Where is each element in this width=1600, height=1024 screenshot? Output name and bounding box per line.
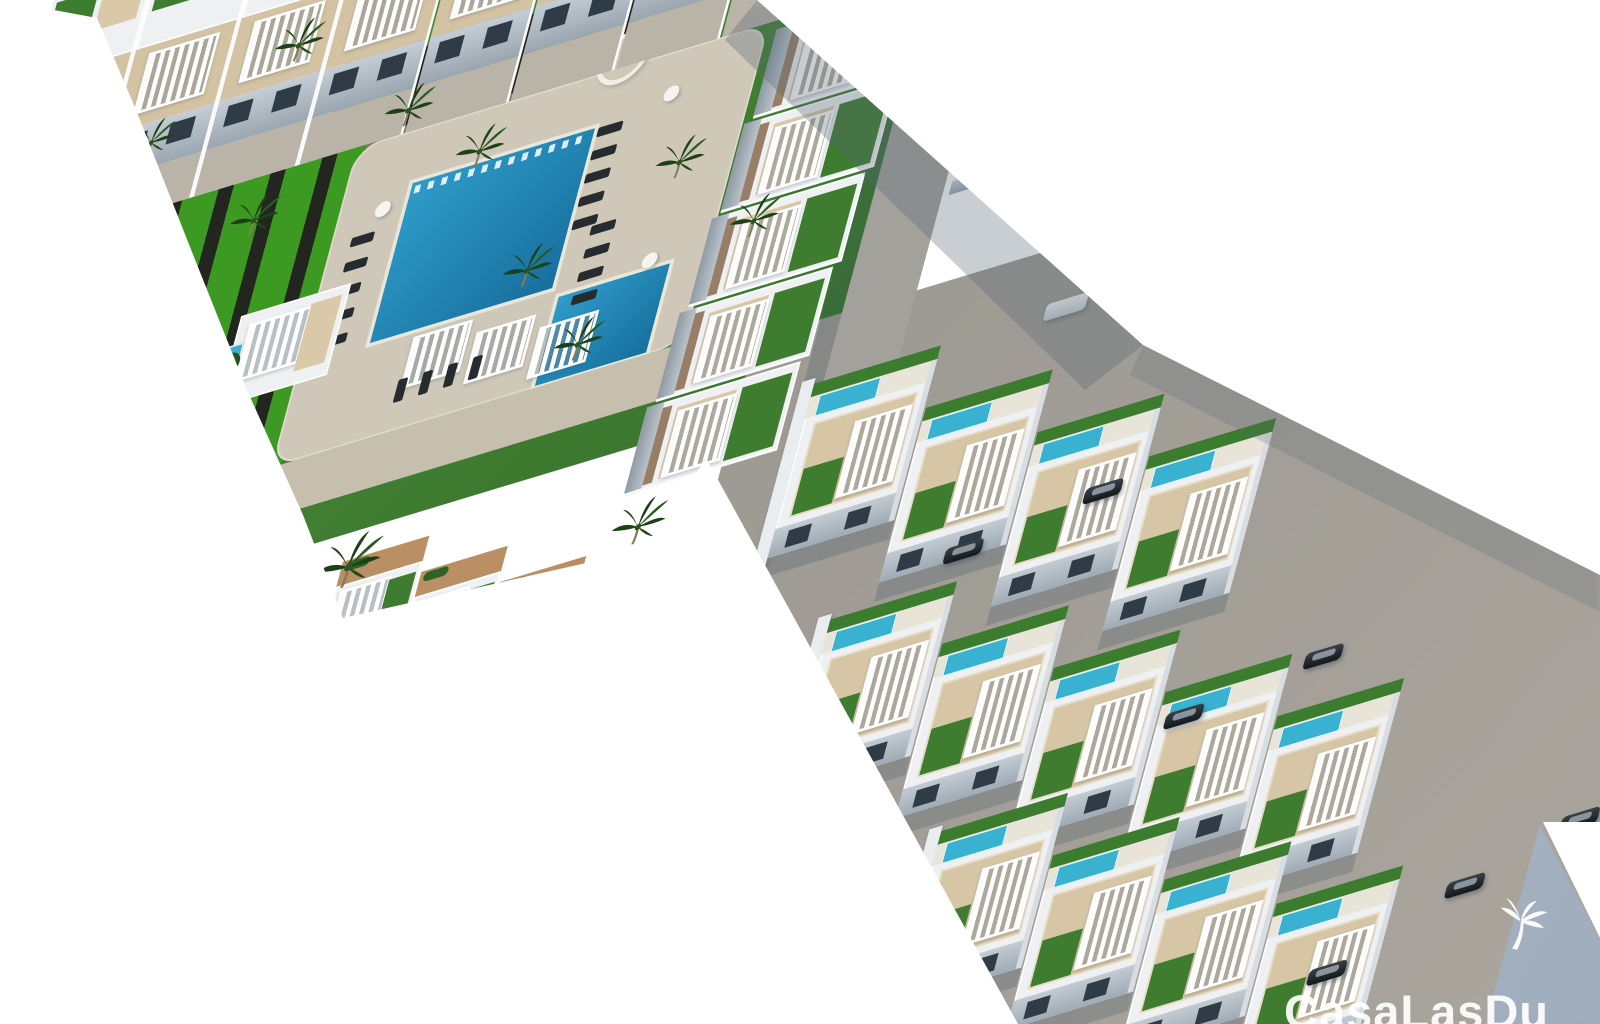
aerial-render: CasaLasDu [0, 0, 1600, 1024]
watermark-text: CasaLasDu [1284, 984, 1549, 1024]
